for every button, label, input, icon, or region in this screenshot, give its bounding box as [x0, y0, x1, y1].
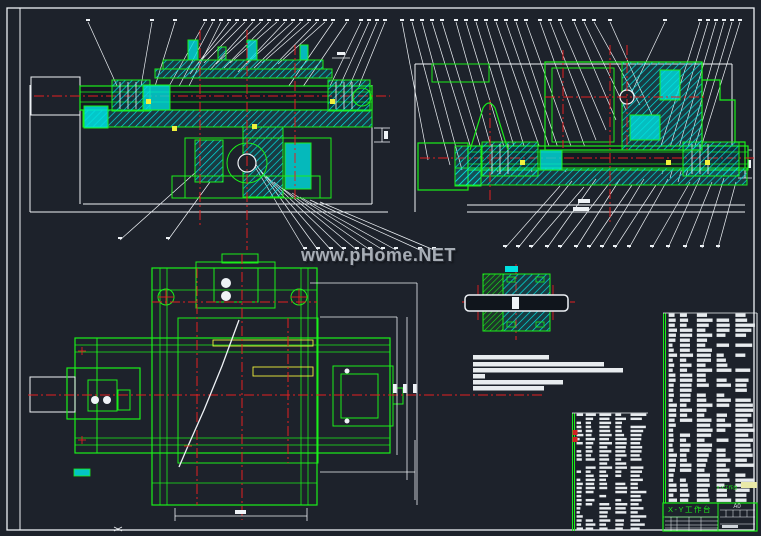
title-block-sheet-size: A0: [733, 504, 741, 510]
title-block-part-name: X-Y工作台: [668, 504, 712, 514]
technical-notes-lines: [473, 355, 623, 391]
side-section-view: [400, 19, 755, 248]
watermark: www.pHome.NET: [301, 245, 456, 266]
bom-table-right: [663, 313, 757, 531]
bom-table-left: [572, 413, 648, 531]
front-section-view: [30, 19, 436, 250]
drawing-sheet: X-Y工作台 A0 X-Y工作台 www.pHome.NET: [0, 0, 761, 536]
bom-highlight-label: X-Y工作台: [716, 484, 738, 491]
shaft-detail-view: [462, 264, 575, 340]
cad-canvas: X-Y工作台 A0 X-Y工作台: [0, 0, 761, 536]
plan-view: [28, 254, 545, 521]
